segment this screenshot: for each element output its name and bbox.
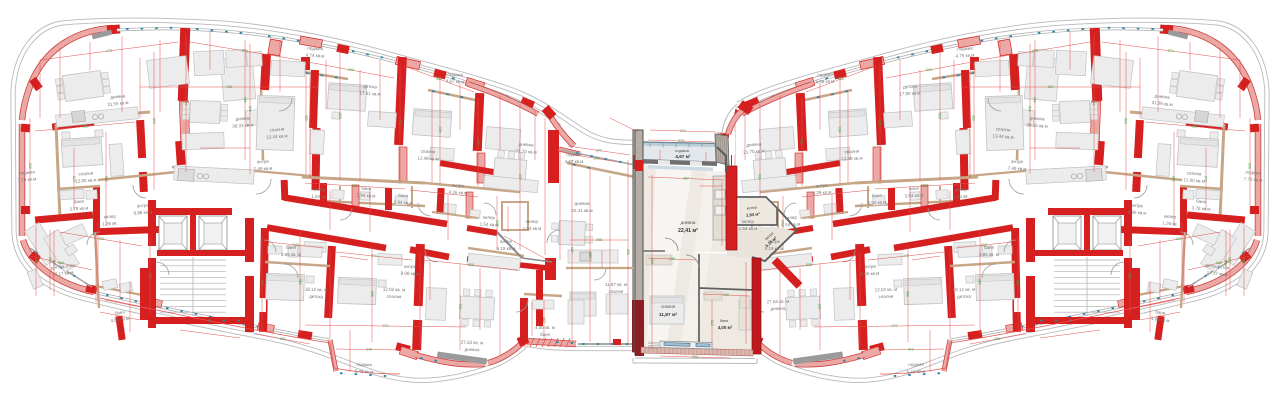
svg-text:420: 420 bbox=[261, 280, 265, 286]
svg-text:473: 473 bbox=[106, 49, 112, 53]
svg-text:антре: антре bbox=[864, 264, 877, 269]
svg-text:дневна: дневна bbox=[681, 220, 696, 225]
svg-text:445: 445 bbox=[1048, 85, 1054, 89]
svg-text:спалня: спалня bbox=[78, 170, 94, 176]
svg-text:355: 355 bbox=[1192, 125, 1198, 129]
svg-text:4.00 кв. м: 4.00 кв. м bbox=[535, 325, 555, 330]
svg-text:лоджия: лоджия bbox=[356, 362, 372, 368]
svg-text:12.02 кв. м: 12.02 кв. м bbox=[383, 287, 406, 293]
svg-text:387: 387 bbox=[683, 177, 689, 181]
svg-text:485: 485 bbox=[651, 259, 655, 265]
svg-text:лоджия: лоджия bbox=[908, 362, 924, 368]
svg-text:4.26 кв.м: 4.26 кв.м bbox=[812, 190, 831, 196]
svg-text:160: 160 bbox=[723, 293, 729, 297]
svg-text:спалня: спалня bbox=[844, 149, 860, 155]
svg-text:473: 473 bbox=[1168, 49, 1174, 53]
svg-text:250: 250 bbox=[339, 113, 343, 119]
svg-text:3.94 кв.м: 3.94 кв.м bbox=[867, 200, 886, 206]
svg-text:190: 190 bbox=[35, 258, 39, 264]
svg-text:спалня: спалня bbox=[269, 126, 285, 132]
svg-text:7.49 кв.м: 7.49 кв.м bbox=[254, 166, 273, 172]
svg-text:антре: антре bbox=[816, 183, 829, 189]
svg-text:420: 420 bbox=[468, 263, 474, 267]
svg-text:3.85 кв. м: 3.85 кв. м bbox=[281, 252, 301, 257]
svg-text:250: 250 bbox=[937, 113, 941, 119]
svg-text:детска: детска bbox=[957, 294, 971, 299]
svg-text:спалня: спалня bbox=[996, 126, 1012, 132]
svg-text:баня: баня bbox=[398, 193, 409, 199]
svg-text:205: 205 bbox=[153, 118, 157, 124]
svg-text:205: 205 bbox=[1123, 118, 1127, 124]
svg-text:290: 290 bbox=[348, 68, 354, 72]
svg-text:230: 230 bbox=[436, 77, 442, 81]
svg-text:лоджия: лоджия bbox=[307, 46, 323, 52]
svg-text:420: 420 bbox=[519, 174, 523, 180]
svg-text:150: 150 bbox=[305, 115, 309, 121]
svg-text:360: 360 bbox=[977, 279, 981, 285]
svg-text:11.87 кв. м: 11.87 кв. м bbox=[605, 282, 627, 287]
svg-text:340: 340 bbox=[366, 348, 372, 352]
svg-text:420: 420 bbox=[799, 139, 803, 145]
svg-text:детска: детска bbox=[903, 84, 918, 90]
svg-text:460: 460 bbox=[1032, 97, 1036, 103]
svg-text:150: 150 bbox=[49, 257, 53, 263]
svg-text:1.64 кв.: 1.64 кв. bbox=[953, 194, 969, 200]
svg-text:485: 485 bbox=[589, 252, 593, 258]
svg-text:3.94 кв.м: 3.94 кв.м bbox=[904, 193, 923, 199]
svg-text:баня: баня bbox=[74, 199, 85, 205]
svg-text:420: 420 bbox=[1015, 280, 1019, 286]
svg-text:373: 373 bbox=[678, 139, 684, 143]
svg-text:антре: антре bbox=[404, 264, 417, 269]
svg-text:спалня: спалня bbox=[609, 289, 624, 294]
svg-text:4,00 м²: 4,00 м² bbox=[718, 325, 733, 330]
svg-text:антре: антре bbox=[500, 239, 513, 244]
svg-text:445: 445 bbox=[226, 85, 232, 89]
svg-text:детска: детска bbox=[309, 294, 323, 299]
svg-text:230: 230 bbox=[594, 157, 600, 161]
svg-text:баня: баня bbox=[361, 186, 372, 192]
svg-text:антре: антре bbox=[1131, 203, 1144, 209]
svg-text:баня: баня bbox=[872, 193, 883, 199]
svg-text:11,87 м²: 11,87 м² bbox=[659, 312, 678, 318]
svg-text:спалня: спалня bbox=[1187, 170, 1203, 176]
svg-text:антре: антре bbox=[137, 203, 150, 209]
svg-text:антре: антре bbox=[257, 159, 270, 164]
svg-text:баня: баня bbox=[984, 245, 994, 250]
svg-text:5.42 кв.м: 5.42 кв.м bbox=[907, 369, 926, 375]
svg-text:370: 370 bbox=[892, 324, 898, 328]
svg-text:120: 120 bbox=[1171, 176, 1175, 182]
svg-text:12.02 кв. м: 12.02 кв. м bbox=[875, 287, 898, 293]
svg-text:баня: баня bbox=[909, 186, 920, 192]
svg-text:3.85 кв. м: 3.85 кв. м bbox=[979, 252, 999, 257]
svg-text:180: 180 bbox=[280, 337, 286, 341]
svg-text:460: 460 bbox=[244, 97, 248, 103]
svg-text:340: 340 bbox=[908, 348, 914, 352]
svg-text:баня: баня bbox=[1196, 199, 1207, 205]
svg-text:300: 300 bbox=[627, 249, 631, 255]
svg-text:150: 150 bbox=[971, 115, 975, 121]
svg-text:305: 305 bbox=[29, 163, 33, 169]
svg-text:120: 120 bbox=[149, 273, 153, 279]
svg-text:1.54 кв.м: 1.54 кв.м bbox=[781, 222, 800, 228]
svg-text:дневна: дневна bbox=[464, 347, 480, 353]
svg-text:дневна: дневна bbox=[770, 306, 786, 312]
svg-text:детска: детска bbox=[363, 84, 378, 90]
svg-text:4.67 кв.м: 4.67 кв.м bbox=[565, 159, 584, 164]
svg-text:4.75 кв.м: 4.75 кв.м bbox=[955, 53, 974, 59]
svg-text:370: 370 bbox=[383, 324, 389, 328]
svg-text:3.94 кв.м: 3.94 кв.м bbox=[357, 193, 376, 199]
svg-text:килер: килер bbox=[483, 215, 496, 221]
svg-text:445: 445 bbox=[185, 100, 189, 106]
svg-text:485: 485 bbox=[571, 247, 575, 253]
svg-text:250: 250 bbox=[877, 120, 881, 126]
svg-text:420: 420 bbox=[806, 263, 812, 267]
svg-text:баня: баня bbox=[286, 245, 296, 250]
svg-text:1.64 кв.: 1.64 кв. bbox=[311, 194, 327, 200]
svg-text:антре: антре bbox=[1011, 159, 1024, 164]
svg-text:1.54 кв.м: 1.54 кв.м bbox=[739, 226, 758, 231]
svg-text:8.06 кв.м: 8.06 кв.м bbox=[861, 271, 880, 277]
svg-text:килер: килер bbox=[742, 219, 755, 224]
svg-text:360: 360 bbox=[922, 184, 928, 188]
svg-text:5.19 кв.м: 5.19 кв.м bbox=[765, 246, 784, 251]
svg-text:4.26 кв.м: 4.26 кв.м bbox=[449, 190, 468, 196]
svg-text:355: 355 bbox=[82, 125, 88, 129]
svg-text:430: 430 bbox=[1176, 237, 1182, 241]
svg-text:7.49 кв.м: 7.49 кв.м bbox=[1008, 166, 1027, 172]
svg-text:баня: баня bbox=[540, 332, 550, 337]
svg-text:спалня: спалня bbox=[661, 304, 675, 309]
svg-text:27.53 кв. м: 27.53 кв. м bbox=[461, 340, 484, 346]
svg-text:18.12 кв. м: 18.12 кв. м bbox=[953, 287, 976, 293]
svg-text:килер: килер bbox=[1164, 214, 1177, 220]
svg-text:4,67 м²: 4,67 м² bbox=[675, 154, 691, 159]
svg-text:3.94 кв.м: 3.94 кв.м bbox=[394, 200, 413, 206]
svg-text:22.41 кв.м: 22.41 кв.м bbox=[571, 208, 592, 213]
svg-text:230: 230 bbox=[838, 77, 844, 81]
svg-text:5.19 кв.м: 5.19 кв.м bbox=[497, 246, 516, 251]
svg-text:спалня: спалня bbox=[387, 294, 402, 300]
svg-text:305: 305 bbox=[1247, 163, 1251, 169]
svg-text:лоджия: лоджия bbox=[957, 46, 973, 52]
svg-text:371: 371 bbox=[596, 149, 602, 153]
svg-text:1.54 кв.м: 1.54 кв.м bbox=[523, 226, 542, 231]
svg-text:250: 250 bbox=[399, 120, 403, 126]
svg-text:380: 380 bbox=[371, 291, 375, 297]
svg-text:8.06 кв.м: 8.06 кв.м bbox=[401, 271, 420, 277]
svg-text:298: 298 bbox=[596, 238, 602, 242]
svg-text:спалня: спалня bbox=[421, 149, 437, 155]
svg-text:360: 360 bbox=[299, 279, 303, 285]
svg-text:килер: килер bbox=[955, 187, 968, 193]
svg-text:120: 120 bbox=[105, 176, 109, 182]
svg-text:255: 255 bbox=[543, 317, 547, 323]
svg-text:баня: баня bbox=[720, 319, 728, 323]
svg-text:антре: антре bbox=[768, 239, 781, 244]
svg-text:190: 190 bbox=[1241, 258, 1245, 264]
svg-text:445: 445 bbox=[1091, 100, 1095, 106]
svg-text:420: 420 bbox=[837, 127, 841, 133]
svg-text:4.74 кв.м: 4.74 кв.м bbox=[306, 53, 325, 59]
svg-text:килер: килер bbox=[785, 215, 798, 221]
svg-text:спалня: спалня bbox=[878, 294, 893, 300]
svg-text:килер: килер bbox=[104, 214, 117, 220]
svg-text:180: 180 bbox=[995, 337, 1001, 341]
svg-text:1.54 кв.м: 1.54 кв.м bbox=[480, 222, 499, 228]
svg-text:445: 445 bbox=[1027, 106, 1031, 112]
svg-text:150: 150 bbox=[1227, 257, 1231, 263]
svg-text:420: 420 bbox=[817, 304, 821, 310]
svg-text:290: 290 bbox=[926, 68, 932, 72]
svg-text:5.42 кв.м: 5.42 кв.м bbox=[355, 369, 374, 375]
svg-text:420: 420 bbox=[459, 304, 463, 310]
svg-text:420: 420 bbox=[477, 139, 481, 145]
svg-text:302: 302 bbox=[692, 355, 698, 359]
svg-text:430: 430 bbox=[98, 237, 104, 241]
svg-text:антре: антре bbox=[452, 183, 465, 189]
svg-text:18.12 кв. м: 18.12 кв. м bbox=[305, 287, 328, 293]
svg-text:килер: килер bbox=[526, 219, 539, 224]
svg-text:22,41 м²: 22,41 м² bbox=[678, 228, 698, 234]
svg-text:лоджия: лоджия bbox=[675, 148, 689, 153]
svg-text:килер: килер bbox=[313, 187, 326, 193]
svg-text:27.54 кв. м: 27.54 кв. м bbox=[767, 299, 790, 305]
svg-text:371: 371 bbox=[680, 129, 686, 133]
svg-text:420: 420 bbox=[439, 127, 443, 133]
svg-text:120: 120 bbox=[1127, 273, 1131, 279]
svg-text:360: 360 bbox=[352, 184, 358, 188]
svg-text:лоджия: лоджия bbox=[566, 152, 582, 157]
svg-text:255: 255 bbox=[711, 320, 715, 326]
svg-text:298: 298 bbox=[669, 257, 675, 261]
svg-text:380: 380 bbox=[905, 291, 909, 297]
svg-text:445: 445 bbox=[249, 106, 253, 112]
svg-text:дневна: дневна bbox=[575, 201, 590, 206]
svg-text:420: 420 bbox=[757, 174, 761, 180]
